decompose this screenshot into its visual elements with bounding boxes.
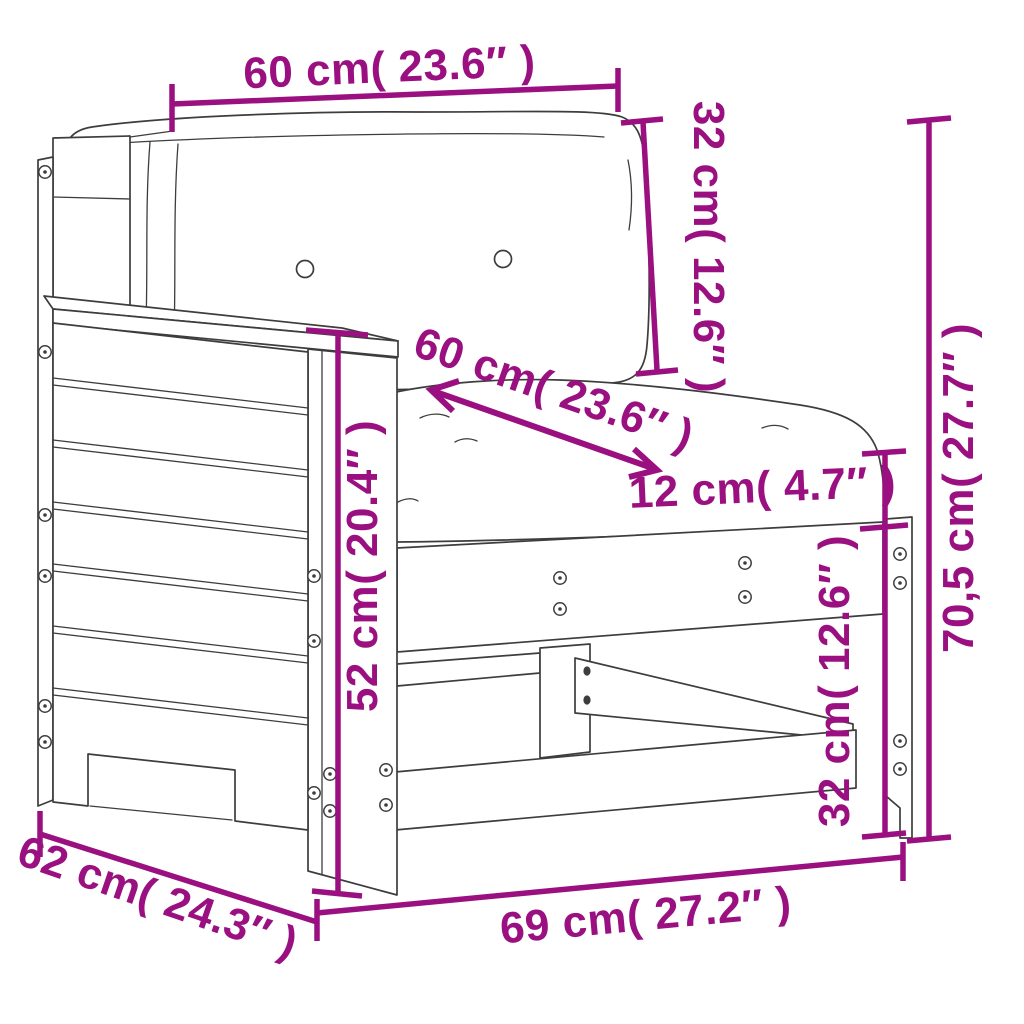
rear-right-leg [886,517,912,838]
dim-underframe-height-label: 32 cm( 12.6″ ) [810,535,859,827]
mid-rail [397,653,540,686]
dim-width: 69 cm( 27.2″ ) [317,842,903,953]
armrest-side-panel [53,323,308,830]
dim-back-cushion-height-label: 32 cm( 12.6″ ) [684,101,733,393]
dim-depth: 62 cm( 24.3″ ) [12,811,317,968]
dim-armrest-height-label: 52 cm( 20.4″ ) [338,420,387,712]
bottom-rail [395,730,856,830]
diagram-canvas: 60 cm( 23.6″ ) 32 cm( 12.6″ ) 60 cm( 23.… [0,0,1024,1024]
dim-depth-label: 62 cm( 24.3″ ) [12,827,304,968]
dim-overall-height: 70,5 cm( 27.7″ ) [907,118,983,841]
dim-overall-height-label: 70,5 cm( 27.7″ ) [934,323,983,653]
